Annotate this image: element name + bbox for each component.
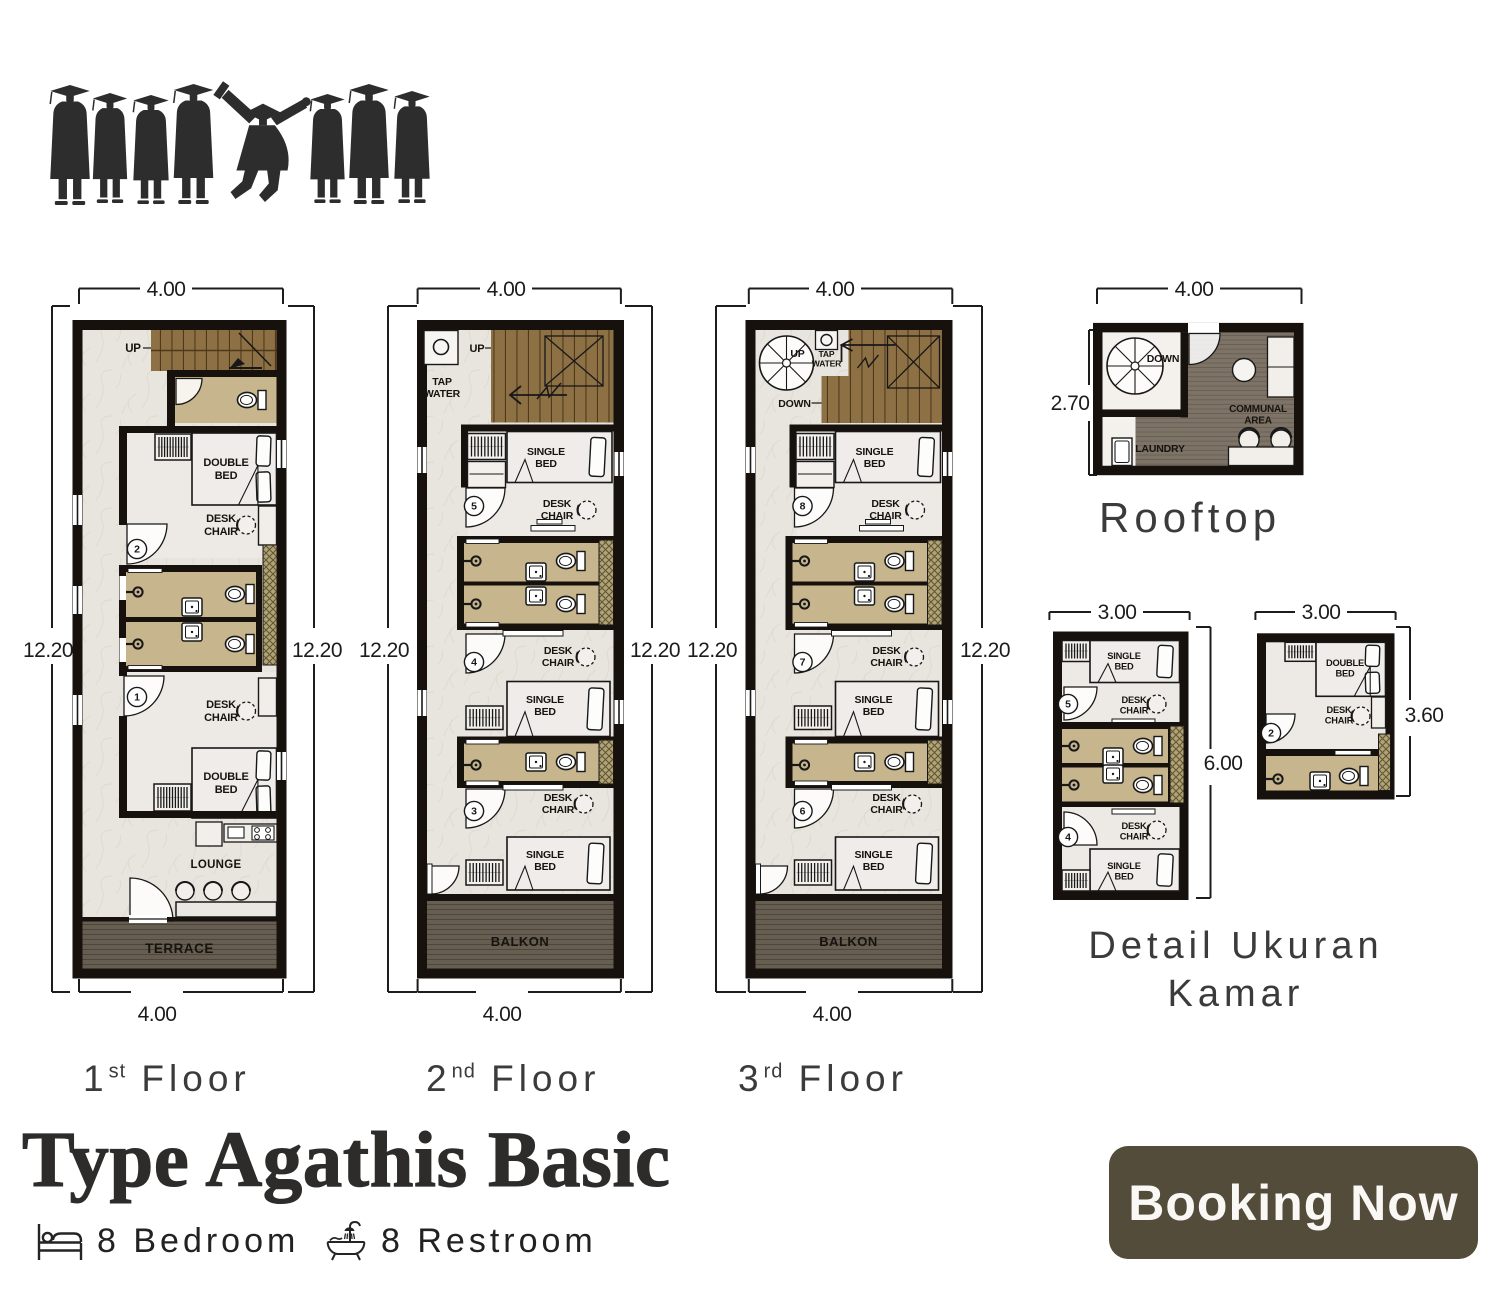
svg-text:BALKON: BALKON: [491, 934, 550, 949]
svg-text:8: 8: [800, 501, 806, 513]
svg-text:DOWN: DOWN: [1147, 353, 1179, 365]
svg-text:3.00: 3.00: [1302, 601, 1341, 624]
svg-text:12.20: 12.20: [292, 639, 342, 662]
svg-text:DESKCHAIR: DESKCHAIR: [542, 645, 575, 669]
svg-text:DESKCHAIR: DESKCHAIR: [870, 645, 903, 669]
svg-text:UP: UP: [470, 343, 485, 355]
svg-text:2.70: 2.70: [1051, 392, 1090, 415]
svg-text:DESKCHAIR: DESKCHAIR: [204, 513, 238, 538]
svg-text:LOUNGE: LOUNGE: [191, 859, 242, 871]
svg-text:DESKCHAIR: DESKCHAIR: [542, 792, 575, 816]
svg-text:TERRACE: TERRACE: [145, 941, 214, 956]
svg-text:12.20: 12.20: [687, 639, 737, 662]
svg-text:4.00: 4.00: [816, 278, 855, 301]
svg-text:DESKCHAIR: DESKCHAIR: [1120, 821, 1149, 842]
svg-text:4.00: 4.00: [483, 1003, 522, 1026]
svg-text:2: 2: [1268, 728, 1274, 740]
svg-text:3: 3: [471, 806, 477, 818]
svg-text:4: 4: [471, 657, 477, 669]
svg-text:DESKCHAIR: DESKCHAIR: [541, 498, 574, 522]
svg-text:DOWN: DOWN: [778, 398, 810, 410]
svg-text:LAUNDRY: LAUNDRY: [1135, 443, 1185, 455]
svg-text:12.20: 12.20: [630, 639, 680, 662]
svg-text:DESKCHAIR: DESKCHAIR: [869, 498, 902, 522]
svg-text:4.00: 4.00: [813, 1003, 852, 1026]
svg-text:5: 5: [471, 501, 477, 513]
svg-text:DESKCHAIR: DESKCHAIR: [1325, 705, 1354, 726]
svg-text:DESKCHAIR: DESKCHAIR: [1120, 695, 1149, 716]
svg-text:UP: UP: [125, 343, 141, 355]
svg-text:4.00: 4.00: [147, 278, 186, 301]
svg-text:3.60: 3.60: [1405, 704, 1444, 727]
svg-text:4.00: 4.00: [138, 1003, 177, 1026]
svg-text:4.00: 4.00: [1175, 278, 1214, 301]
svg-text:3.00: 3.00: [1098, 601, 1137, 624]
svg-text:2: 2: [134, 544, 140, 556]
svg-text:6.00: 6.00: [1204, 752, 1243, 775]
svg-text:5: 5: [1065, 699, 1071, 711]
svg-text:1: 1: [134, 692, 140, 704]
svg-text:7: 7: [800, 657, 806, 669]
svg-text:4: 4: [1065, 832, 1071, 844]
svg-text:12.20: 12.20: [23, 639, 73, 662]
svg-text:12.20: 12.20: [960, 639, 1010, 662]
svg-text:12.20: 12.20: [359, 639, 409, 662]
svg-text:DESKCHAIR: DESKCHAIR: [204, 699, 238, 724]
svg-text:4.00: 4.00: [487, 278, 526, 301]
svg-text:DESKCHAIR: DESKCHAIR: [870, 792, 903, 816]
svg-text:UP: UP: [790, 348, 804, 360]
svg-text:BALKON: BALKON: [819, 934, 878, 949]
svg-text:6: 6: [800, 806, 806, 818]
